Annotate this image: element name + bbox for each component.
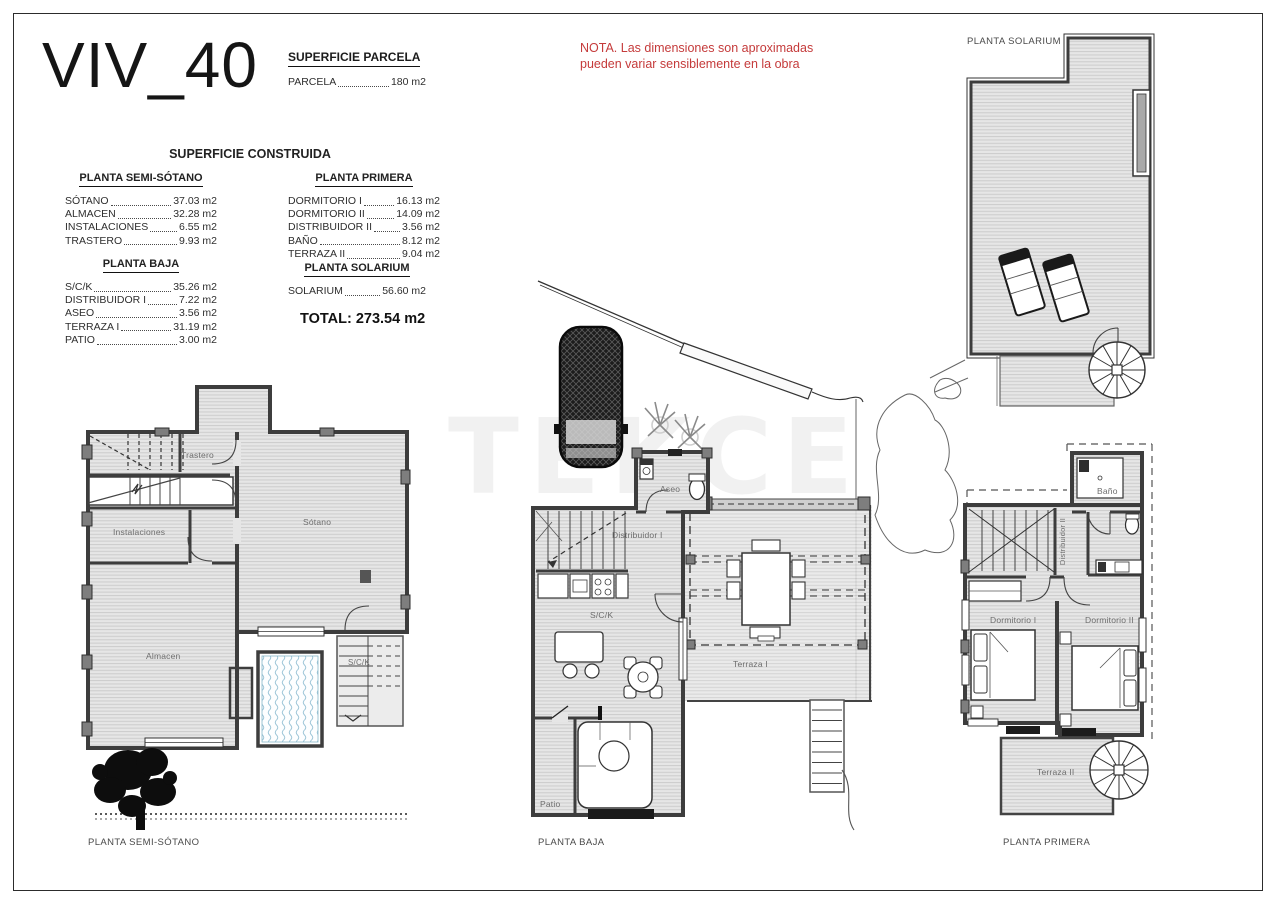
plan-semisotano-drawing	[70, 375, 460, 853]
floor-plan-sheet: TEKCE VIV_40 SUPERFICIE PARCELA PARCELA …	[0, 0, 1280, 902]
plan-solarium-drawing	[940, 20, 1180, 420]
room-label-sck-stairs: S/C/K	[348, 658, 370, 667]
group-semisotano: PLANTA SEMI-SÓTANO SÓTANO37.03 m2ALMACEN…	[65, 172, 217, 248]
spiral-staircase-icon	[1090, 741, 1148, 799]
area-row: INSTALACIONES6.55 m2	[65, 221, 217, 234]
area-row: PATIO3.00 m2	[65, 334, 217, 347]
exterior-stairs-icon	[810, 700, 854, 830]
area-row: TERRAZA I31.19 m2	[65, 321, 217, 334]
room-label-instalaciones: Instalaciones	[113, 527, 165, 537]
tree-icon	[92, 748, 177, 830]
group-solarium: PLANTA SOLARIUM SOLARIUM56.60 m2	[288, 262, 426, 298]
room-label-aseo: Aseo	[660, 484, 680, 494]
room-label-sotano: Sótano	[303, 517, 331, 527]
area-row: SOLARIUM56.60 m2	[288, 285, 426, 298]
group-solarium-list: SOLARIUM56.60 m2	[288, 285, 426, 298]
group-baja-list: S/C/K35.26 m2DISTRIBUIDOR I7.22 m2ASEO3.…	[65, 281, 217, 347]
area-row: PARCELA 180 m2	[288, 76, 426, 89]
area-row: TRASTERO9.93 m2	[65, 235, 217, 248]
room-label-dormitorio2: Dormitorio II	[1085, 615, 1134, 625]
area-row: ALMACEN32.28 m2	[65, 208, 217, 221]
superficie-parcela-title: SUPERFICIE PARCELA	[288, 50, 420, 67]
skylight-icon	[1133, 90, 1150, 176]
room-label-terraza2: Terraza II	[1037, 767, 1074, 777]
caption-planta-semisotano: PLANTA SEMI-SÓTANO	[88, 837, 199, 848]
area-row: TERRAZA II9.04 m2	[288, 248, 440, 261]
room-label-dormitorio1: Dormitorio I	[990, 615, 1036, 625]
superficie-parcela-block: SUPERFICIE PARCELA PARCELA 180 m2	[288, 50, 438, 89]
room-label-almacen: Almacen	[146, 651, 180, 661]
note-text: NOTA. Las dimensiones son aproximadas pu…	[580, 40, 870, 72]
area-row: ASEO3.56 m2	[65, 307, 217, 320]
room-label-terraza1: Terraza I	[733, 659, 768, 669]
area-row: DORMITORIO I16.13 m2	[288, 195, 440, 208]
exterior-stairs-icon	[337, 636, 403, 726]
car-icon	[554, 327, 628, 467]
area-row: DISTRIBUIDOR I7.22 m2	[65, 294, 217, 307]
group-baja: PLANTA BAJA S/C/K35.26 m2DISTRIBUIDOR I7…	[65, 258, 217, 347]
caption-planta-primera: PLANTA PRIMERA	[1003, 837, 1090, 848]
glass-door	[1006, 726, 1040, 734]
superficie-parcela-list: PARCELA 180 m2	[288, 76, 426, 89]
group-semisotano-list: SÓTANO37.03 m2ALMACEN32.28 m2INSTALACION…	[65, 195, 217, 248]
room-label-trastero: Trastero	[181, 450, 214, 460]
room-label-bano: Baño	[1097, 486, 1118, 496]
room-label-sck: S/C/K	[590, 610, 613, 620]
glass-door	[1062, 728, 1096, 736]
group-primera: PLANTA PRIMERA DORMITORIO I16.13 m2DORMI…	[288, 172, 440, 261]
area-row: S/C/K35.26 m2	[65, 281, 217, 294]
area-row: DISTRIBUIDOR II3.56 m2	[288, 221, 440, 234]
superficie-construida-title: SUPERFICIE CONSTRUIDA	[150, 147, 350, 161]
page-title: VIV_40	[42, 28, 258, 102]
spiral-staircase-icon	[1089, 342, 1145, 398]
caption-planta-solarium: PLANTA SOLARIUM	[967, 36, 1061, 47]
pool	[258, 652, 322, 746]
toilet-icon	[690, 479, 705, 500]
room-label-patio: Patio	[540, 799, 560, 809]
area-row: SÓTANO37.03 m2	[65, 195, 217, 208]
round-table-icon	[624, 657, 662, 698]
area-row: BAÑO8.12 m2	[288, 235, 440, 248]
glass-door	[588, 809, 654, 819]
caption-planta-baja: PLANTA BAJA	[538, 837, 605, 848]
plant-icon	[645, 402, 705, 450]
room-label-distribuidor2: Distribuidor II	[1034, 512, 1092, 570]
area-row: DORMITORIO II14.09 m2	[288, 208, 440, 221]
total-area: TOTAL: 273.54 m2	[300, 311, 425, 327]
group-primera-list: DORMITORIO I16.13 m2DORMITORIO II14.09 m…	[288, 195, 440, 261]
plan-baja-drawing	[520, 270, 970, 860]
sofa-icon	[578, 722, 652, 808]
room-label-distribuidor1: Distribuidor I	[612, 530, 663, 540]
kitchen-counter	[538, 574, 628, 598]
plan-primera-drawing	[940, 430, 1180, 860]
